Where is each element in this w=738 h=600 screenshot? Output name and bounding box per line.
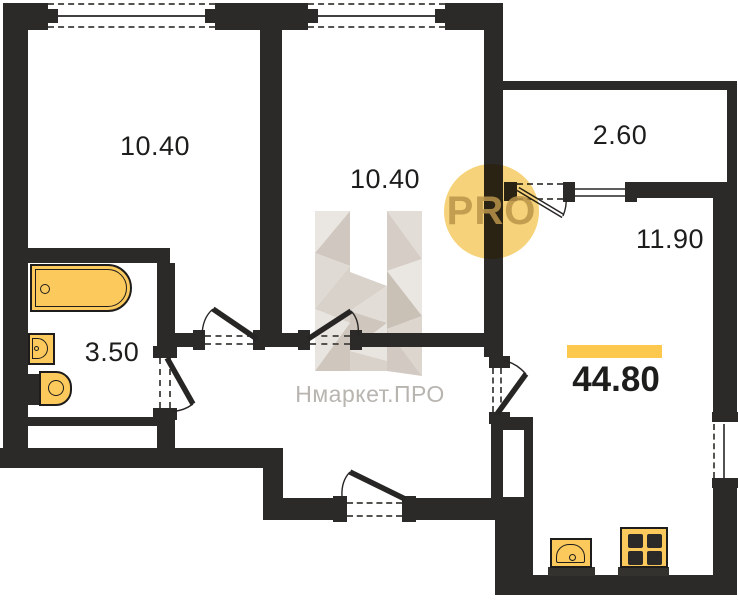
door-living-dash-1: [492, 368, 494, 412]
toilet-tank: [25, 374, 39, 405]
window-b-dash-bottom: [308, 26, 445, 28]
wall-balcony-parapet-top: [503, 81, 737, 90]
toilet-seat: [48, 380, 64, 396]
entrance-door-jamb-a: [333, 496, 347, 522]
window-b-jamb-right: [435, 9, 445, 23]
door-bathroom-jamb-b: [153, 408, 177, 420]
stove-burner-1: [628, 534, 643, 548]
door-bedroom-middle-dash-1: [310, 335, 350, 337]
window-a-jamb-right: [205, 9, 215, 23]
toilet-bowl: [39, 371, 72, 406]
wall-rooms-divider-vertical: [260, 22, 282, 333]
room-label-bedroom-middle: 10.40: [325, 164, 445, 195]
entrance-door-dash-2: [347, 515, 402, 517]
stove-burner-4: [647, 551, 662, 565]
door-bedroom-middle-dash-2: [310, 343, 350, 345]
stove: [620, 527, 668, 568]
window-right-dash: [713, 424, 715, 478]
wall-kitchen-bottom: [497, 575, 737, 595]
floor-plan: Нмаркет.ПРО: [0, 0, 738, 600]
stove-burner-3: [628, 551, 643, 565]
bathtub: [30, 264, 132, 312]
door-bedroom-left-jamb-a: [193, 330, 205, 350]
wall-balcony-divider-right: [637, 182, 737, 198]
door-living-dash-2: [500, 368, 502, 412]
door-leaf-entrance: [350, 472, 405, 499]
window-a-dash-bottom: [48, 26, 215, 28]
wall-hall-bottom-a: [263, 498, 337, 520]
kitchen-sink: [550, 538, 592, 568]
window-right-frame-bottom: [712, 478, 738, 488]
room-label-living: 11.90: [610, 224, 730, 255]
wall-hall-top-c: [355, 333, 491, 347]
door-bedroom-left-dash-1: [205, 335, 253, 337]
wall-balcony-parapet-right: [727, 81, 737, 182]
wall-top-seg3: [445, 3, 503, 30]
door-bedroom-left-jamb-b: [253, 330, 265, 350]
stove-base: [618, 567, 669, 576]
wall-hall-bottom-b: [405, 498, 503, 520]
window-b-dash-top: [308, 3, 445, 5]
balcony-window-frame-right: [625, 182, 637, 202]
washbasin: [28, 333, 55, 365]
kitchen-sink-drain: [569, 554, 576, 561]
room-label-bedroom-left: 10.40: [95, 131, 215, 162]
window-a-jamb-left: [48, 9, 58, 23]
entrance-door-jamb-b: [402, 496, 416, 522]
wall-bathroom-top: [25, 248, 170, 263]
pro-badge-text: PRO: [444, 164, 539, 259]
wall-bottom-left-outer: [0, 448, 283, 468]
door-bedroom-left-dash-2: [205, 343, 253, 345]
door-living-jamb-b: [489, 412, 510, 424]
stove-burner-2: [647, 534, 662, 548]
entrance-door-dash-1: [347, 502, 402, 504]
window-b-jamb-left: [308, 9, 318, 23]
watermark-brand-text: Нмаркет.ПРО: [260, 381, 480, 408]
door-living-jamb-a: [489, 356, 510, 368]
room-label-balcony: 2.60: [560, 120, 680, 151]
wall-top-seg1: [3, 3, 48, 30]
window-right-frame-top: [712, 412, 738, 422]
room-label-bathroom: 3.50: [52, 337, 172, 368]
wall-bathroom-bottom-thin: [28, 417, 157, 426]
total-area-label: 44.80: [555, 360, 677, 400]
door-arc-entrance: [342, 472, 350, 497]
washbasin-drain: [34, 346, 39, 351]
door-bedroom-middle-jamb-a: [298, 330, 310, 350]
window-a-dash-top: [48, 3, 215, 5]
door-bedroom-middle-jamb-b: [350, 330, 362, 350]
balcony-window-frame-left: [563, 182, 575, 202]
wall-kitchen-left-lower: [495, 497, 533, 595]
bathtub-drain: [40, 284, 50, 294]
total-area-accent-bar: [567, 345, 662, 358]
brand-h-logo: [313, 211, 425, 377]
ventilation-shaft-inner: [503, 430, 524, 497]
kitchen-sink-base: [548, 567, 595, 576]
